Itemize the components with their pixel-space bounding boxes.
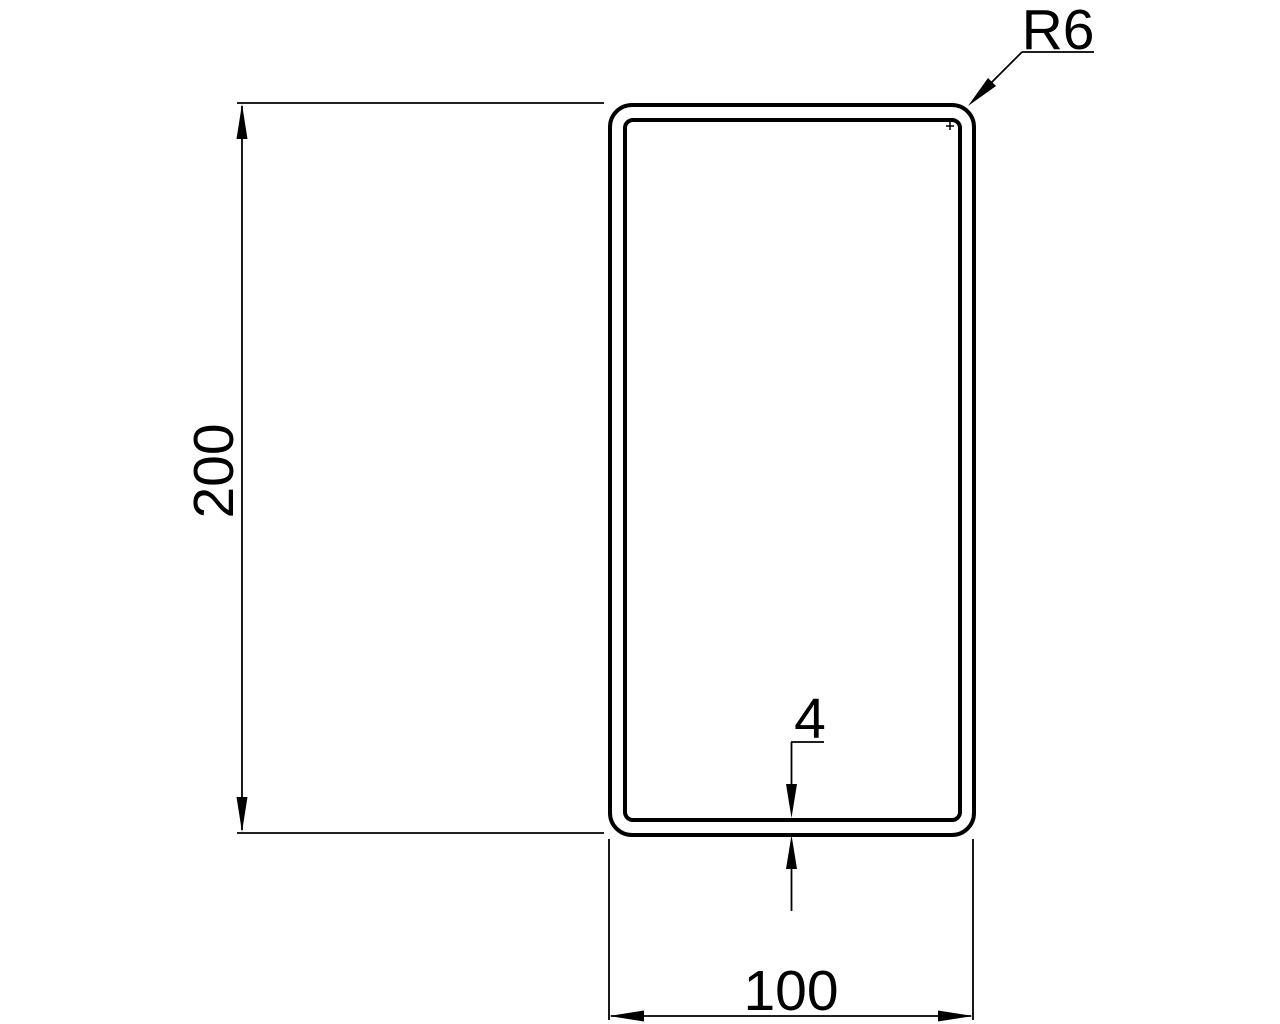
arrow-up-icon — [786, 835, 797, 869]
arrow-down-icon — [237, 797, 248, 832]
height-dimension-label: 200 — [182, 423, 246, 518]
height-dimension: 200 — [182, 103, 604, 833]
inner-contour — [625, 120, 960, 820]
drawing-canvas: 200 100 4 R6 — [0, 0, 1280, 1024]
radius-center-mark-icon — [946, 122, 954, 130]
outer-contour — [610, 105, 974, 835]
width-dimension-label: 100 — [743, 959, 838, 1023]
radius-callout: R6 — [968, 0, 1094, 106]
arrow-down-icon — [786, 784, 797, 818]
tube-profile — [610, 105, 974, 835]
arrow-down-left-icon — [968, 78, 996, 106]
arrow-up-icon — [237, 104, 248, 139]
thickness-dimension: 4 — [786, 687, 826, 911]
arrow-right-icon — [938, 1011, 973, 1022]
arrow-left-icon — [609, 1011, 644, 1022]
technical-drawing: 200 100 4 R6 — [0, 0, 1280, 1024]
